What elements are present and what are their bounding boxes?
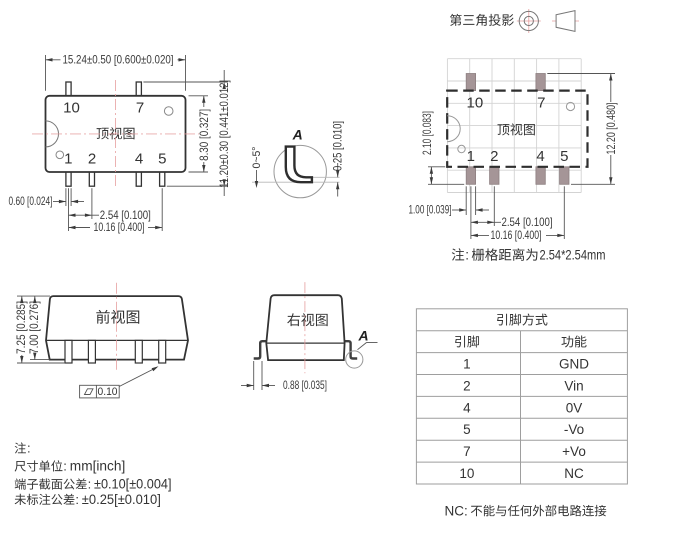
- svg-text:2: 2: [463, 378, 471, 393]
- svg-text:0V: 0V: [566, 400, 583, 415]
- svg-text:A: A: [357, 328, 368, 344]
- svg-text:Vin: Vin: [564, 378, 583, 393]
- svg-text:4: 4: [135, 151, 143, 168]
- svg-text:NC: NC: [564, 466, 584, 481]
- svg-text:7.00 [0.276]: 7.00 [0.276]: [27, 301, 41, 354]
- svg-text:0.10: 0.10: [98, 386, 118, 398]
- svg-text:A: A: [292, 127, 303, 143]
- svg-text:1: 1: [64, 151, 72, 168]
- svg-text:10: 10: [459, 466, 474, 481]
- svg-text::: :: [88, 477, 92, 492]
- svg-text:11.20±0.30 [0.441±0.012]: 11.20±0.30 [0.441±0.012]: [217, 80, 231, 188]
- svg-text:0.88 [0.035]: 0.88 [0.035]: [283, 378, 327, 392]
- svg-text::: :: [27, 441, 31, 456]
- svg-text:1: 1: [463, 357, 471, 372]
- svg-text:1: 1: [467, 148, 475, 165]
- svg-text:4: 4: [463, 400, 471, 415]
- svg-text:2: 2: [490, 148, 498, 165]
- svg-text:10.16 [0.400]: 10.16 [0.400]: [491, 228, 542, 242]
- svg-text:0~5°: 0~5°: [251, 147, 263, 169]
- svg-text:±0.10[±0.004]: ±0.10[±0.004]: [94, 477, 172, 492]
- svg-text:GND: GND: [559, 357, 589, 372]
- svg-text:2: 2: [88, 151, 96, 168]
- svg-text:-Vo: -Vo: [564, 422, 584, 437]
- svg-text:2.10 [0.083]: 2.10 [0.083]: [420, 111, 434, 155]
- svg-text:4: 4: [536, 148, 544, 165]
- svg-text:7: 7: [537, 94, 545, 111]
- svg-text:10: 10: [63, 100, 80, 117]
- svg-text:2.54*2.54mm: 2.54*2.54mm: [540, 248, 606, 263]
- svg-text:±0.25[±0.010]: ±0.25[±0.010]: [82, 492, 161, 507]
- svg-text:5: 5: [560, 148, 568, 165]
- svg-text::: :: [75, 492, 79, 507]
- svg-text:7: 7: [136, 100, 144, 117]
- svg-text::: :: [63, 459, 67, 474]
- svg-text:10: 10: [467, 94, 484, 111]
- svg-text:NC:: NC:: [445, 503, 468, 518]
- svg-text:5: 5: [158, 151, 166, 168]
- svg-text::: :: [465, 248, 469, 263]
- svg-text:2.54 [0.100]: 2.54 [0.100]: [502, 215, 553, 229]
- svg-text:0.60 [0.024]: 0.60 [0.024]: [9, 194, 53, 208]
- svg-text:12.20 [0.480]: 12.20 [0.480]: [604, 103, 618, 155]
- svg-text:+Vo: +Vo: [562, 444, 586, 459]
- svg-text:7.25 [0.285]: 7.25 [0.285]: [14, 301, 28, 354]
- svg-text:7: 7: [463, 444, 471, 459]
- svg-text:10.16 [0.400]: 10.16 [0.400]: [94, 220, 145, 234]
- svg-text:mm[inch]: mm[inch]: [70, 459, 126, 474]
- svg-text:8.30 [0.327]: 8.30 [0.327]: [197, 109, 211, 161]
- svg-text:15.24±0.50 [0.600±0.020]: 15.24±0.50 [0.600±0.020]: [63, 52, 174, 66]
- svg-text:1.00 [0.039]: 1.00 [0.039]: [409, 203, 452, 217]
- svg-text:0.25 [0.010]: 0.25 [0.010]: [331, 121, 345, 171]
- svg-text:5: 5: [463, 422, 471, 437]
